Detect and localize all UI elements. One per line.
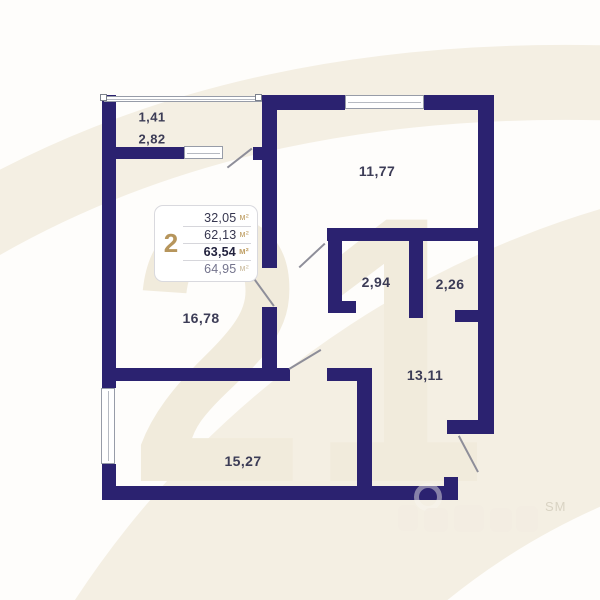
room-label-kitchen: 15,27 bbox=[224, 453, 261, 469]
areas-list: 32,05 м² 62,13 м² 63,54 м² 64,95 м² bbox=[183, 210, 251, 277]
wall-balcony-notch bbox=[253, 147, 262, 160]
window-left bbox=[101, 388, 115, 464]
wall-bedroom-bottom bbox=[327, 228, 494, 241]
wall-top-left-segment bbox=[262, 95, 339, 110]
brand-logo-glyph bbox=[516, 506, 538, 532]
wall-left-upper bbox=[102, 95, 116, 388]
brand-logo-glyph bbox=[454, 505, 484, 532]
area-unit: м² bbox=[239, 212, 249, 222]
wall-entry-top bbox=[447, 420, 494, 434]
wall-right bbox=[478, 95, 494, 420]
area-unit: м² bbox=[239, 246, 249, 256]
room-label-living: 16,78 bbox=[182, 310, 219, 326]
brand-logo-glyph bbox=[490, 508, 512, 532]
room-label-balcony-a: 1,41 bbox=[139, 110, 166, 125]
area-row-total: 63,54 м² bbox=[183, 244, 251, 261]
wall-kitchen-right bbox=[357, 368, 372, 486]
brand-logo-ring-icon bbox=[414, 483, 442, 511]
room-label-wc: 2,26 bbox=[436, 276, 465, 292]
room-label-balcony-b: 2,82 bbox=[139, 132, 166, 147]
wall-wc-bottom bbox=[455, 310, 494, 322]
wall-balcony-bottom bbox=[102, 147, 184, 159]
glazing-end-marker-left bbox=[100, 94, 107, 101]
area-value: 63,54 bbox=[204, 245, 236, 259]
wall-bathroom-divider bbox=[409, 241, 423, 318]
glazing-mid-line bbox=[107, 99, 259, 100]
wall-entry-step bbox=[444, 477, 458, 500]
wall-mid-vertical-upper bbox=[262, 95, 277, 268]
brand-sm-label: SM bbox=[545, 499, 567, 514]
window-top bbox=[345, 95, 424, 109]
window-balcony bbox=[184, 146, 223, 159]
area-value: 62,13 bbox=[204, 228, 236, 242]
area-row: 32,05 м² bbox=[183, 210, 251, 227]
wall-bathroom-left bbox=[328, 241, 342, 301]
window-mid-line bbox=[187, 153, 220, 154]
room-label-bathroom: 2,94 bbox=[362, 274, 391, 290]
rooms-count: 2 bbox=[159, 228, 183, 259]
window-mid-line bbox=[108, 391, 109, 461]
room-label-bedroom: 11,77 bbox=[359, 163, 395, 179]
wall-mid-vertical-lower bbox=[262, 307, 277, 368]
wall-bathroom-foot bbox=[328, 301, 356, 313]
apartment-info-box: 2 32,05 м² 62,13 м² 63,54 м² 64,95 м² bbox=[154, 205, 258, 282]
brand-logo-glyph bbox=[424, 508, 448, 532]
area-unit: м² bbox=[239, 263, 249, 273]
wall-bottom bbox=[102, 486, 458, 500]
balcony-glazing bbox=[104, 96, 262, 102]
area-row: 62,13 м² bbox=[183, 227, 251, 244]
brand-logo-glyph bbox=[398, 505, 418, 531]
area-value: 32,05 bbox=[204, 211, 236, 225]
area-value: 64,95 bbox=[204, 262, 236, 276]
window-mid-line bbox=[348, 102, 421, 103]
glazing-end-marker-right bbox=[255, 94, 262, 101]
wall-kitchen-top bbox=[102, 368, 290, 381]
area-unit: м² bbox=[239, 229, 249, 239]
area-row: 64,95 м² bbox=[183, 261, 251, 277]
room-label-hall: 13,11 bbox=[407, 367, 443, 383]
